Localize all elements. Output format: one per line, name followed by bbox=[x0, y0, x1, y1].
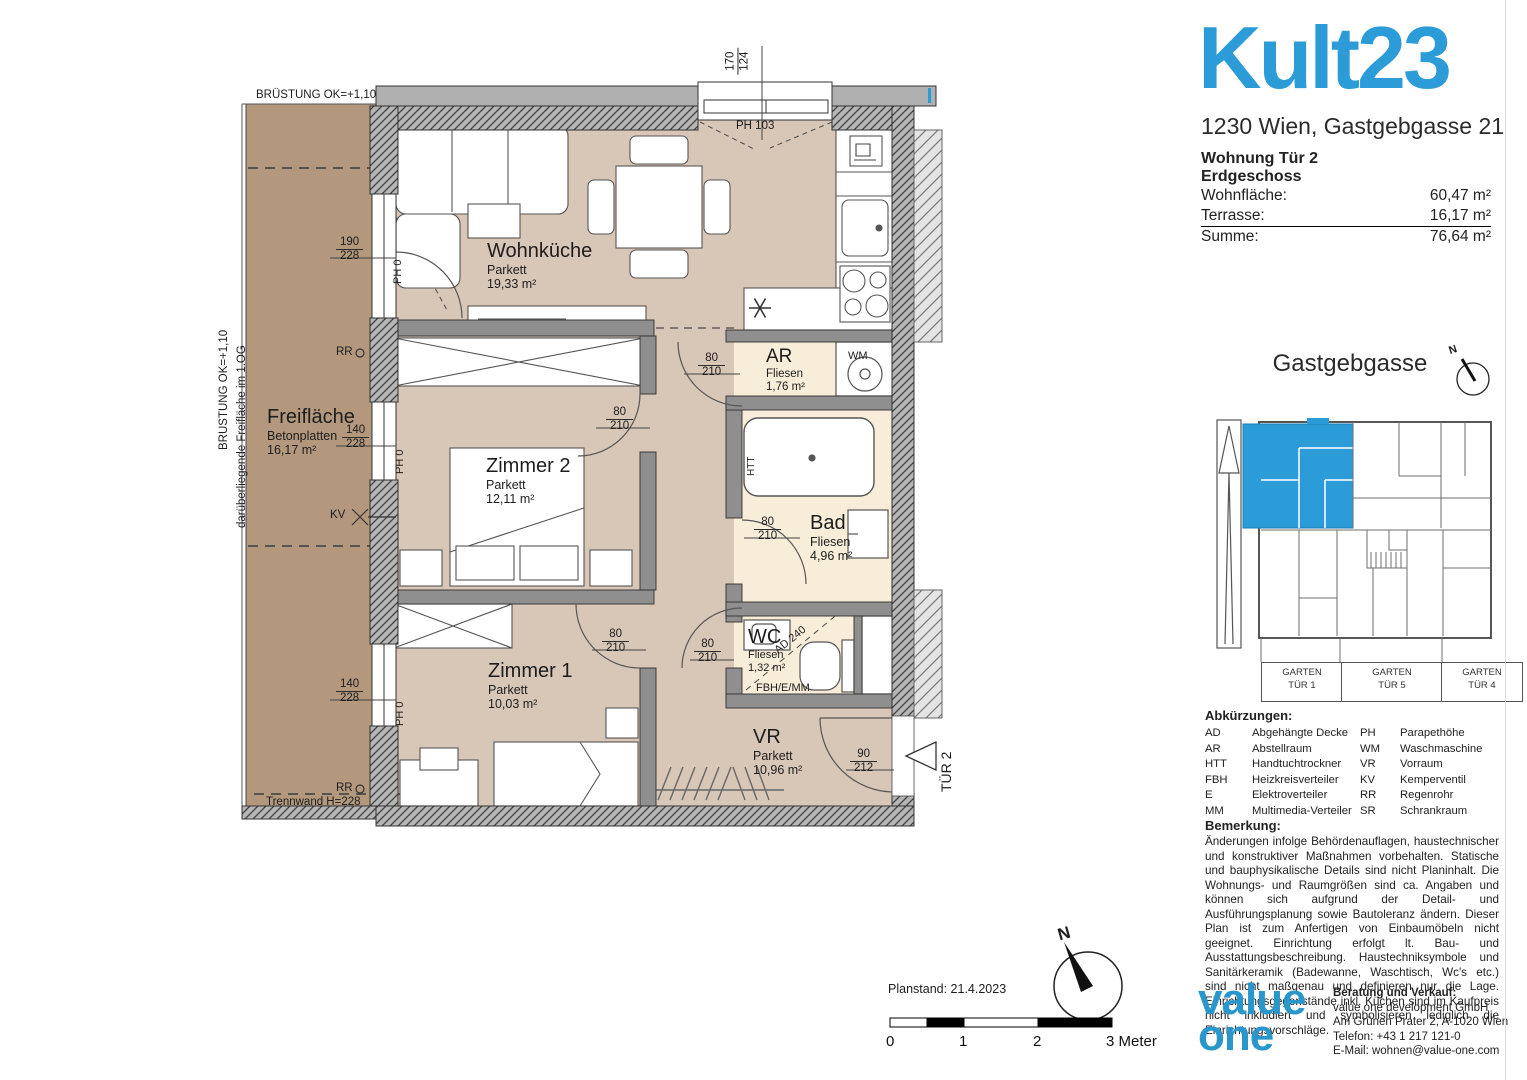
floor-plan-page: Wohnküche Parkett 19,33 m² Zimmer 2 Park… bbox=[0, 0, 1527, 1080]
compass-icon bbox=[1054, 942, 1122, 1020]
project-logo: Kult23 bbox=[1198, 14, 1449, 102]
unit-info-block: Wohnung Tür 2 Erdgeschoss Wohnfläche: 60… bbox=[1201, 150, 1491, 247]
wm-label: WM bbox=[848, 350, 868, 362]
garden-box-tuer4: GARTEN TÜR 4 bbox=[1441, 662, 1523, 702]
room-label-ar: AR Fliesen 1,76 m² bbox=[766, 346, 805, 394]
abbreviations-title: Abkürzungen: bbox=[1205, 708, 1497, 723]
fbh-label: FBH/E/MM bbox=[756, 682, 810, 694]
site-arrow-icon bbox=[1217, 420, 1241, 648]
dim-door-bad: 80210 bbox=[754, 516, 781, 542]
dim-top-window: 170124 bbox=[724, 48, 750, 75]
ph0-label-2: PH 0 bbox=[394, 424, 406, 474]
garden-box-tuer1: GARTEN TÜR 1 bbox=[1261, 662, 1343, 702]
dim-door-wc: 80210 bbox=[694, 638, 721, 664]
ph0-label-3: PH 0 bbox=[394, 676, 406, 726]
abbreviations-grid: ADAbgehängte Decke PHParapethöhe ARAbste… bbox=[1205, 726, 1497, 819]
room-label-wohnkueche: Wohnküche Parkett 19,33 m² bbox=[487, 240, 592, 292]
contact-title: Beratung und Verkauf: bbox=[1333, 986, 1508, 1001]
room-label-bad: Bad Fliesen 4,96 m² bbox=[810, 512, 852, 564]
scale-tick-2: 2 bbox=[1033, 1033, 1041, 1050]
rr-label-1: RR bbox=[336, 346, 353, 358]
contact-company: value one development GmbH bbox=[1333, 1001, 1508, 1016]
freiflaeche-og-label: darüberliegende Freifläche im 1.OG bbox=[236, 228, 248, 528]
contact-email: E-Mail: wohnen@value-one.com bbox=[1333, 1044, 1508, 1059]
street-label: Gastgebgasse bbox=[1240, 350, 1460, 378]
bruestung-top-label: BRÜSTUNG OK=+1,10 bbox=[256, 89, 376, 101]
rr-label-2: RR bbox=[336, 782, 353, 794]
room-label-vr: VR Parkett 10,96 m² bbox=[753, 726, 802, 778]
ph0-label-1: PH 0 bbox=[392, 234, 404, 284]
info-row-summe: Summe: 76,64 m² bbox=[1201, 227, 1491, 247]
abbreviations-block: Abkürzungen: ADAbgehängte Decke PHParape… bbox=[1205, 708, 1497, 819]
garden-box-tuer5: GARTEN TÜR 5 bbox=[1341, 662, 1443, 702]
bruestung-left-label: BRÜSTUNG OK=+1,10 bbox=[218, 200, 230, 450]
dim-entrance-door: 90212 bbox=[850, 748, 877, 774]
ph103-label: PH 103 bbox=[736, 120, 774, 132]
contact-address: Am Grünen Prater 2, A-1020 Wien bbox=[1333, 1015, 1508, 1030]
dim-window-z1: 140228 bbox=[336, 678, 363, 704]
floor-plan-drawing bbox=[0, 0, 1160, 1080]
dim-window-z2: 140228 bbox=[342, 424, 369, 450]
valueone-logo: value one bbox=[1198, 982, 1306, 1054]
dim-terrace-door: 190228 bbox=[336, 236, 363, 262]
dim-door-z2: 80210 bbox=[606, 406, 633, 432]
info-row-wohnflaeche: Wohnfläche: 60,47 m² bbox=[1201, 186, 1491, 206]
kv-label: KV bbox=[330, 509, 345, 521]
scale-tick-1: 1 bbox=[959, 1033, 967, 1050]
site-plan-drawing bbox=[1203, 418, 1499, 664]
remark-title: Bemerkung: bbox=[1205, 818, 1499, 833]
page-edge-line bbox=[1505, 0, 1506, 1080]
tuer2-label: TÜR 2 bbox=[938, 722, 954, 792]
unit-title: Wohnung Tür 2 bbox=[1201, 150, 1491, 168]
dim-door-ar: 80210 bbox=[698, 352, 725, 378]
unit-floor: Erdgeschoss bbox=[1201, 168, 1491, 186]
project-address: 1230 Wien, Gastgebgasse 21 bbox=[1201, 113, 1504, 140]
contact-block: Beratung und Verkauf: value one developm… bbox=[1333, 986, 1508, 1059]
scale-tick-3: 3 Meter bbox=[1106, 1033, 1157, 1050]
highlighted-unit bbox=[1243, 418, 1353, 528]
htt-label: HTT bbox=[746, 432, 757, 476]
trennwand-label: Trennwand H=228 bbox=[266, 796, 361, 808]
info-row-terrasse: Terrasse: 16,17 m² bbox=[1201, 206, 1491, 227]
contact-phone: Telefon: +43 1 217 121-0 bbox=[1333, 1030, 1508, 1045]
scale-tick-0: 0 bbox=[886, 1033, 894, 1050]
site-compass-icon bbox=[1448, 352, 1496, 400]
scale-bar bbox=[890, 1018, 1112, 1027]
planstand-label: Planstand: 21.4.2023 bbox=[888, 982, 1006, 996]
room-label-zimmer2: Zimmer 2 Parkett 12,11 m² bbox=[486, 455, 570, 507]
room-label-zimmer1: Zimmer 1 Parkett 10,03 m² bbox=[488, 660, 572, 712]
dim-door-z1: 80210 bbox=[602, 628, 629, 654]
